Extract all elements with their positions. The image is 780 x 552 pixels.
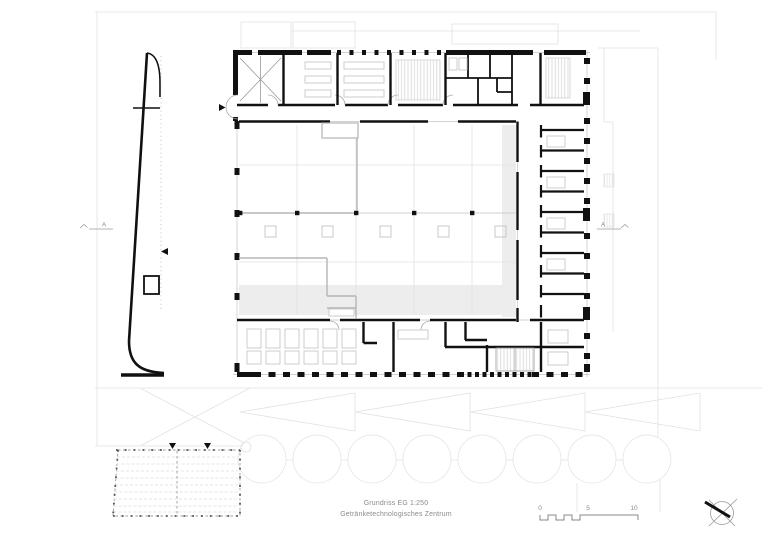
section-squiggle-icon	[621, 225, 629, 229]
shaft-square	[144, 276, 159, 294]
tree-circle	[293, 435, 341, 483]
floor-plan-drawing: A A	[0, 0, 780, 552]
building-plan	[219, 50, 590, 377]
tree-circle	[403, 435, 451, 483]
main-entrance	[219, 91, 238, 121]
north-arrow-icon	[705, 499, 737, 526]
section-squiggle-icon	[80, 225, 88, 229]
tree-circle	[513, 435, 561, 483]
door-jamb	[233, 91, 238, 95]
tree-circle	[623, 435, 671, 483]
column-dot	[238, 211, 242, 215]
equipment-pads	[265, 226, 506, 237]
scale-label-10: 10	[630, 505, 638, 512]
scale-bar: 0 5 10	[538, 505, 638, 520]
top-room-band	[237, 53, 584, 105]
equipment-pad	[322, 226, 333, 237]
east-wall-piers	[583, 58, 590, 372]
canopy-outline	[293, 22, 355, 48]
door-swing-arcs	[226, 95, 238, 119]
column-dot	[412, 211, 416, 215]
lab-benches	[305, 58, 467, 97]
floor-plan-sheet: A A	[0, 0, 780, 552]
bottom-room-band	[247, 322, 584, 372]
column-dot	[354, 211, 358, 215]
hall-edge-shading	[502, 125, 516, 317]
direction-arrow-icon	[161, 248, 168, 255]
equipment-pad	[438, 226, 449, 237]
site-outline-top	[452, 24, 558, 44]
section-letter: A	[102, 223, 106, 229]
pergola-structure	[113, 443, 240, 516]
step-detail	[329, 309, 354, 316]
column-dot	[295, 211, 299, 215]
project-name: Getränketechnologisches Zentrum	[253, 509, 539, 520]
equipment-pad	[265, 226, 276, 237]
tree-circle	[348, 435, 396, 483]
staircase-bottom-right	[496, 348, 534, 371]
right-lab-wing	[541, 125, 584, 318]
scale-label-5: 5	[586, 505, 590, 512]
scale-bar-graphic	[540, 515, 638, 520]
canopy-hatch	[241, 22, 291, 48]
drawing-title: Grundriss EG 1:250	[253, 498, 539, 509]
tree-circle	[568, 435, 616, 483]
section-marker-left: A	[80, 223, 113, 230]
section-letter: A	[601, 223, 605, 229]
shelving-block	[546, 58, 570, 98]
wing-furniture	[547, 136, 565, 270]
site-hatch-block	[604, 174, 614, 187]
equipment-pad	[380, 226, 391, 237]
annex-box	[322, 123, 358, 138]
hall-apron-shading	[239, 285, 516, 315]
site-hatch-block	[604, 214, 614, 227]
tree-row	[238, 435, 671, 483]
column-dot	[470, 211, 474, 215]
curved-boundary-wall	[121, 53, 168, 375]
staircase-top-left	[240, 56, 281, 103]
entrance-arrow-icon	[219, 104, 226, 111]
shelving-block	[396, 60, 440, 100]
tree-circle	[458, 435, 506, 483]
wall-curve	[129, 53, 164, 373]
title-block: Grundriss EG 1:250 Getränketechnologisch…	[253, 498, 539, 520]
parking-zigzag-lines	[240, 393, 700, 431]
pergola-slats	[113, 457, 238, 512]
